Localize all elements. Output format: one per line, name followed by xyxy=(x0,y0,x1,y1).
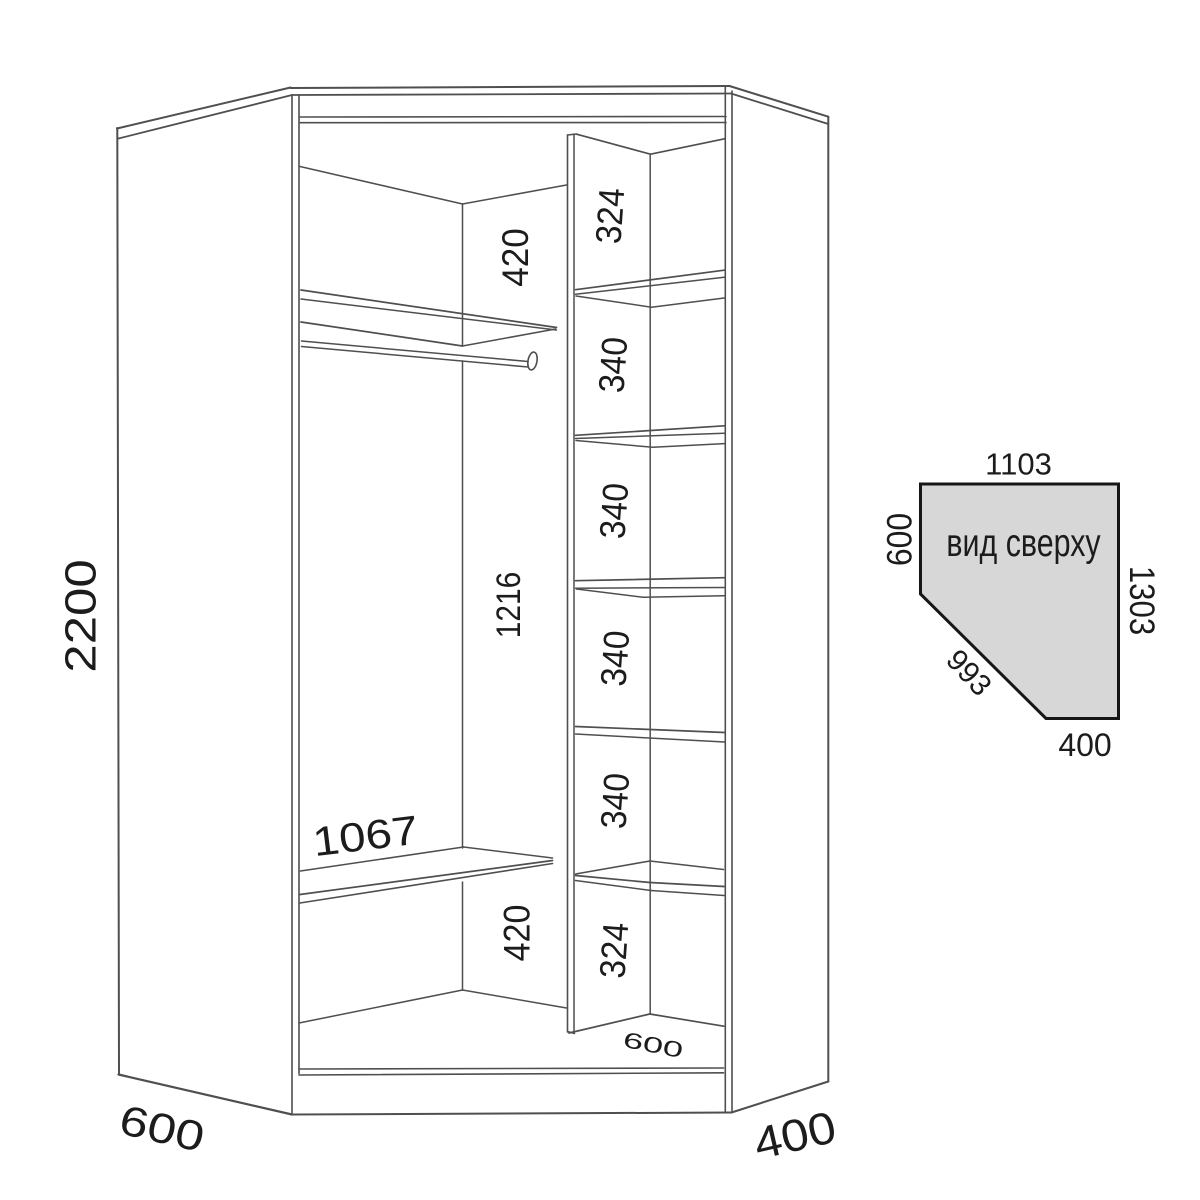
svg-text:1303: 1303 xyxy=(1121,566,1160,635)
svg-text:340: 340 xyxy=(594,629,637,687)
svg-text:340: 340 xyxy=(592,336,635,394)
svg-text:420: 420 xyxy=(494,228,536,287)
svg-text:340: 340 xyxy=(594,772,637,830)
svg-text:2200: 2200 xyxy=(57,559,106,673)
svg-text:1216: 1216 xyxy=(489,572,527,639)
svg-text:600: 600 xyxy=(880,513,920,566)
svg-text:324: 324 xyxy=(593,921,636,979)
svg-text:1103: 1103 xyxy=(985,447,1052,482)
svg-text:420: 420 xyxy=(496,905,538,962)
svg-text:340: 340 xyxy=(593,482,636,540)
svg-text:400: 400 xyxy=(1058,727,1111,763)
svg-text:324: 324 xyxy=(589,187,632,245)
svg-text:вид сверху: вид сверху xyxy=(946,523,1101,565)
